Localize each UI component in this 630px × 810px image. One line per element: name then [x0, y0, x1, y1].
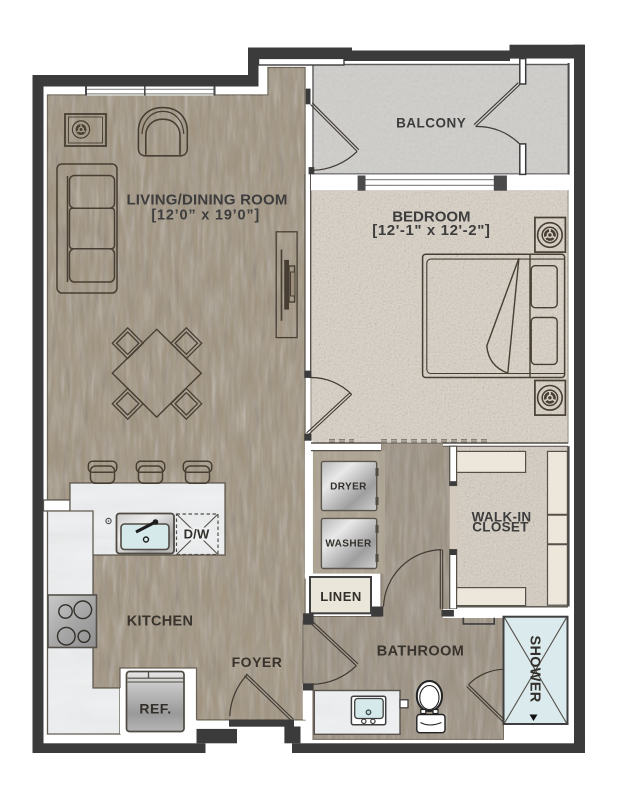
svg-text:BALCONY: BALCONY: [396, 116, 466, 131]
svg-text:CLOSET: CLOSET: [472, 520, 529, 535]
svg-text:WASHER: WASHER: [325, 539, 372, 550]
svg-text:D/W: D/W: [184, 526, 210, 541]
svg-text:BATHROOM: BATHROOM: [377, 644, 465, 660]
svg-text:DRYER: DRYER: [330, 482, 367, 493]
svg-text:[12’0” x 19’0”]: [12’0” x 19’0”]: [151, 207, 260, 223]
svg-text:SHOWER: SHOWER: [527, 635, 543, 702]
svg-text:REF.: REF.: [139, 700, 171, 716]
svg-text:KITCHEN: KITCHEN: [127, 614, 194, 630]
svg-text:LINEN: LINEN: [320, 589, 362, 604]
svg-text:LIVING/DINING ROOM: LIVING/DINING ROOM: [126, 192, 287, 209]
svg-text:[12'-1" x 12'-2"]: [12'-1" x 12'-2"]: [372, 222, 490, 239]
svg-text:FOYER: FOYER: [232, 654, 283, 670]
